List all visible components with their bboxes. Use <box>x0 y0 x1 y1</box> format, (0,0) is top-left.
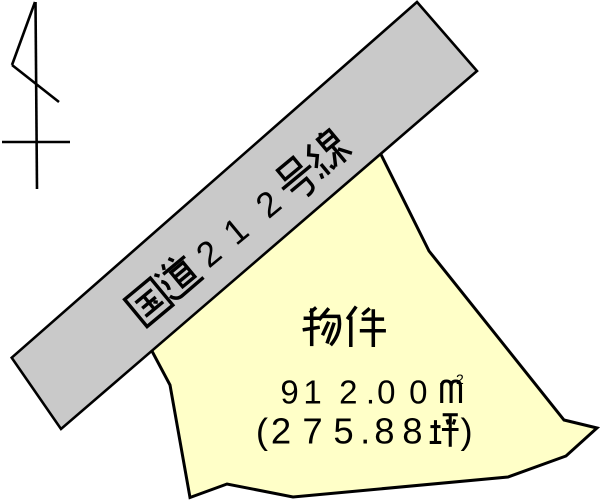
svg-text:): ) <box>461 410 473 451</box>
svg-text:2: 2 <box>456 371 464 387</box>
